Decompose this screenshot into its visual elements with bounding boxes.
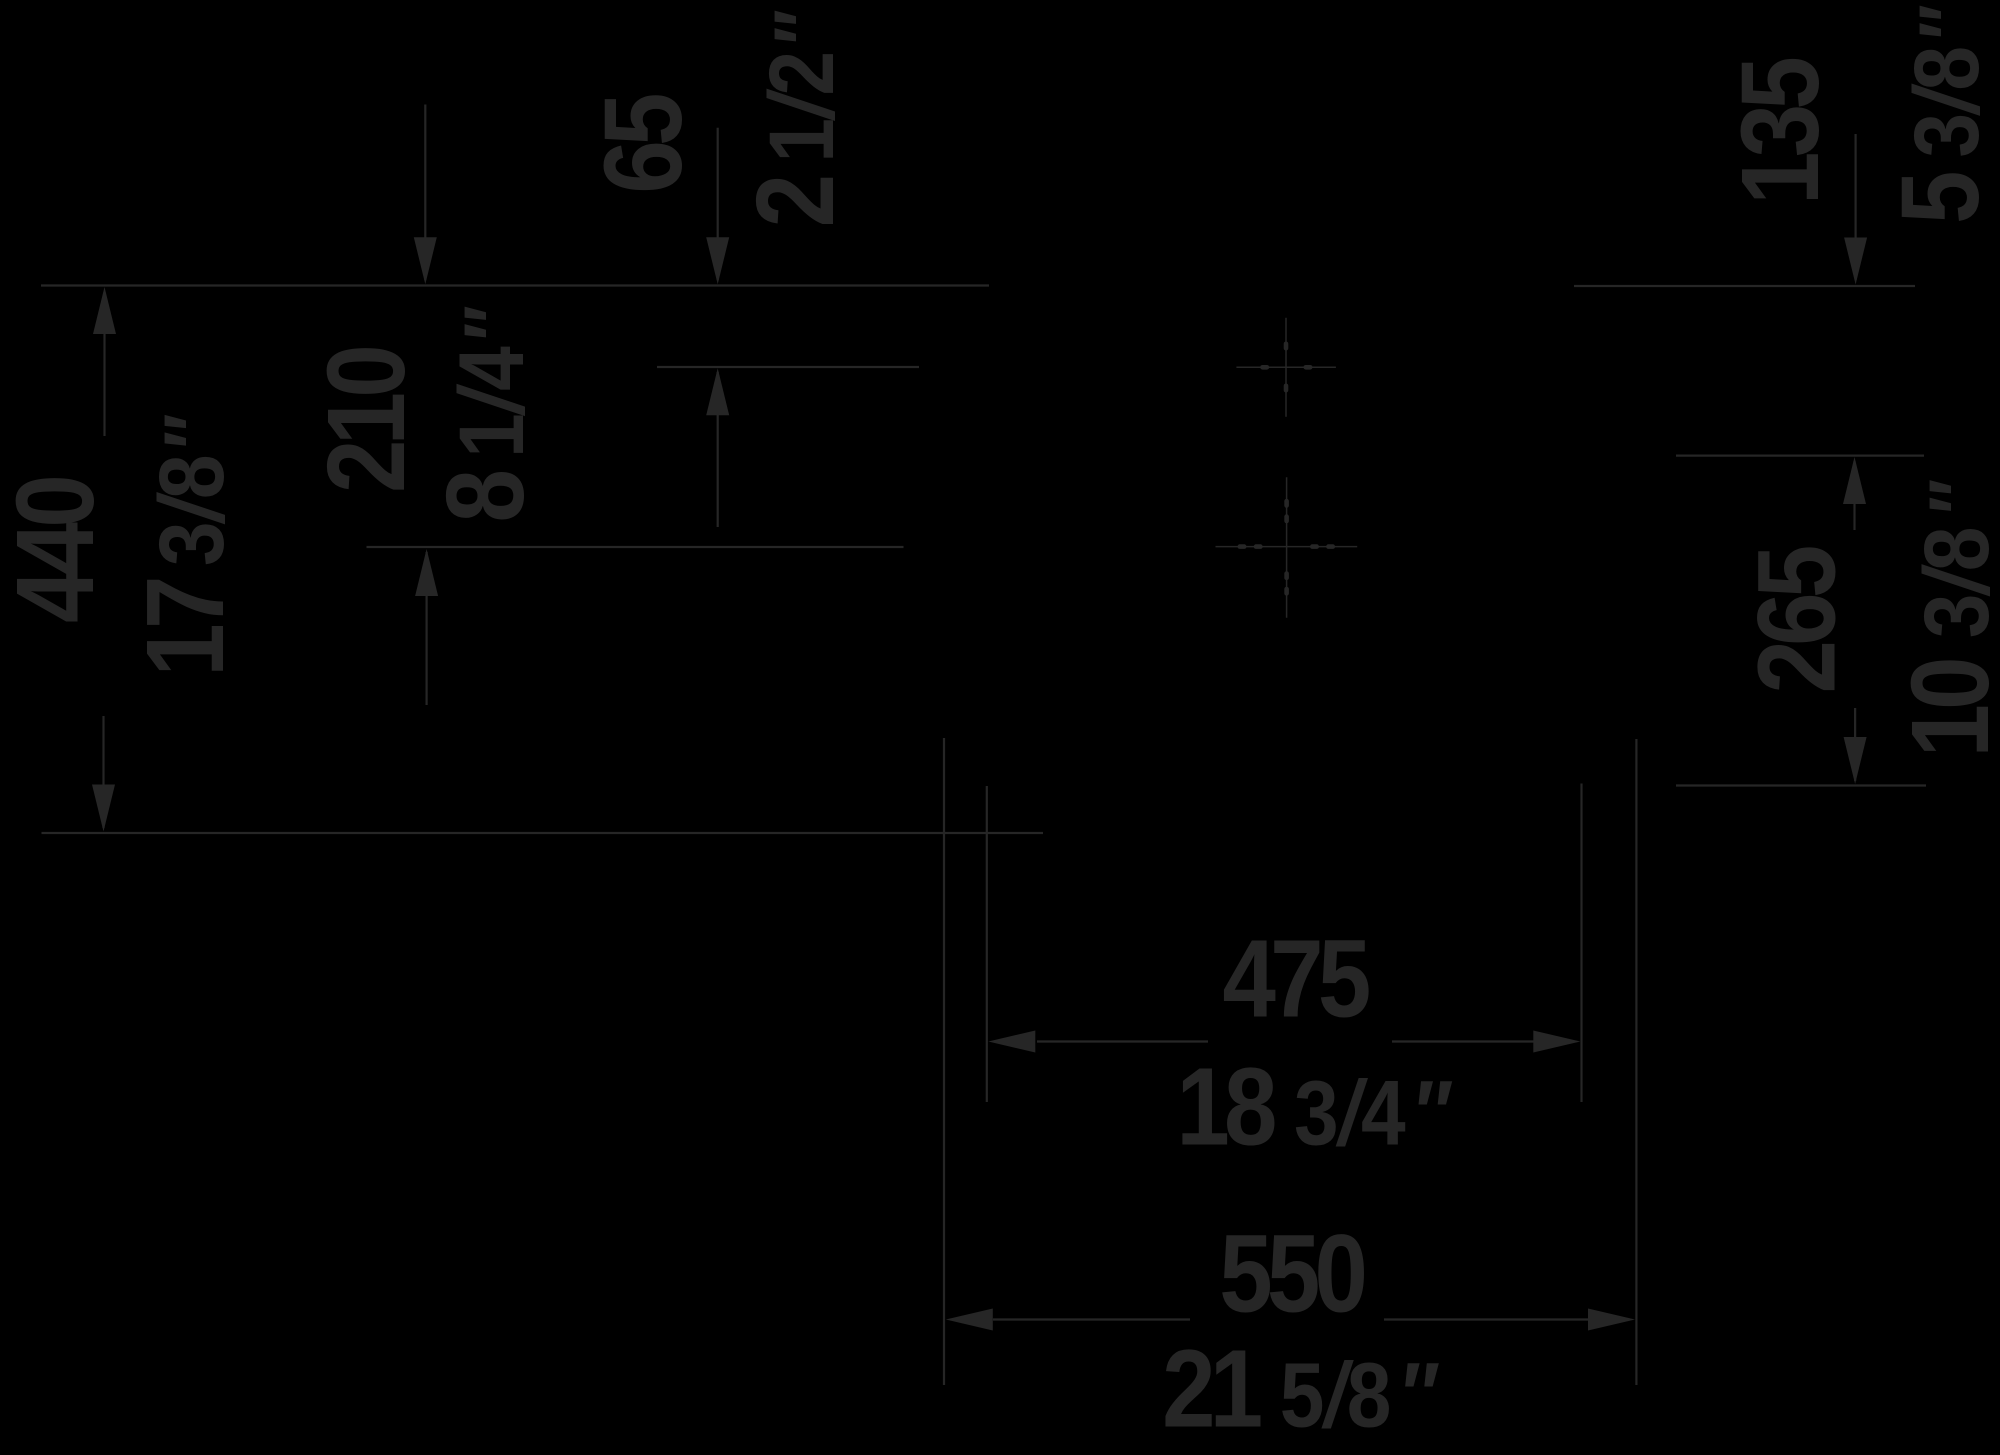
svg-text:210: 210 xyxy=(305,347,428,493)
svg-text:2 1/2″: 2 1/2″ xyxy=(734,10,857,227)
svg-text:8 1/4″: 8 1/4″ xyxy=(424,306,547,522)
svg-text:440: 440 xyxy=(0,477,116,623)
svg-text:10 3/8″: 10 3/8″ xyxy=(1889,480,2000,758)
svg-text:5 3/8″: 5 3/8″ xyxy=(1879,5,2000,224)
svg-text:475: 475 xyxy=(1223,917,1369,1040)
svg-text:265: 265 xyxy=(1735,547,1858,693)
svg-text:17 3/8″: 17 3/8″ xyxy=(124,415,247,677)
svg-text:65: 65 xyxy=(582,95,705,194)
svg-text:18 3/4″: 18 3/4″ xyxy=(1176,1045,1452,1168)
svg-text:135: 135 xyxy=(1719,59,1842,205)
svg-text:550: 550 xyxy=(1219,1212,1365,1335)
svg-text:21 5/8″: 21 5/8″ xyxy=(1162,1327,1439,1450)
